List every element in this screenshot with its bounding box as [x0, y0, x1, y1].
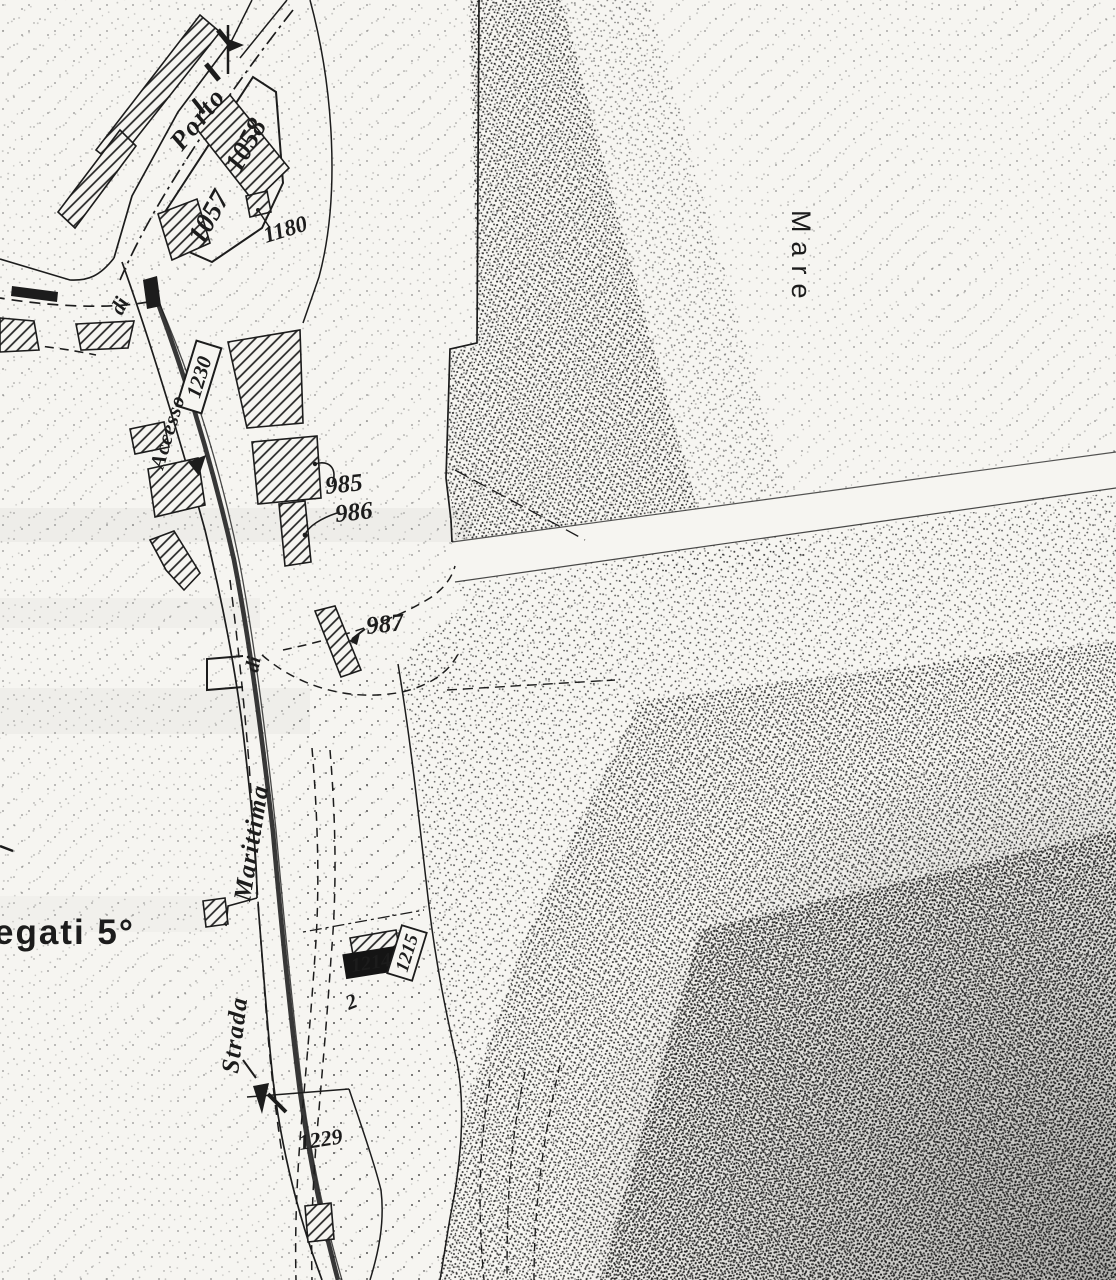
building-1180 — [246, 191, 271, 217]
cadastral-map: 1230 1214 1215 Porto di Accesso di Marit… — [0, 0, 1116, 1280]
hatched-wedge-left-1 — [0, 318, 39, 352]
leader-1180-dot — [256, 208, 260, 212]
label-mare: Mare — [786, 210, 816, 308]
parcel-number-985: 985 — [324, 469, 364, 500]
leader-986-dot — [303, 533, 308, 538]
hatched-wedge-left-2 — [76, 321, 134, 350]
scan-streak — [0, 688, 310, 734]
scanned-map-page: 1230 1214 1215 Porto di Accesso di Marit… — [0, 0, 1116, 1280]
parcel-number-986: 986 — [334, 497, 375, 528]
building-985 — [252, 436, 321, 504]
small-building-bottom — [305, 1203, 334, 1242]
small-building-mid — [203, 898, 228, 927]
parcel-number-987: 987 — [365, 609, 407, 640]
corner-darkening — [316, 480, 1116, 1280]
legend-fragment-text: egati 5° — [0, 913, 135, 952]
leader-985-dot — [313, 462, 317, 466]
